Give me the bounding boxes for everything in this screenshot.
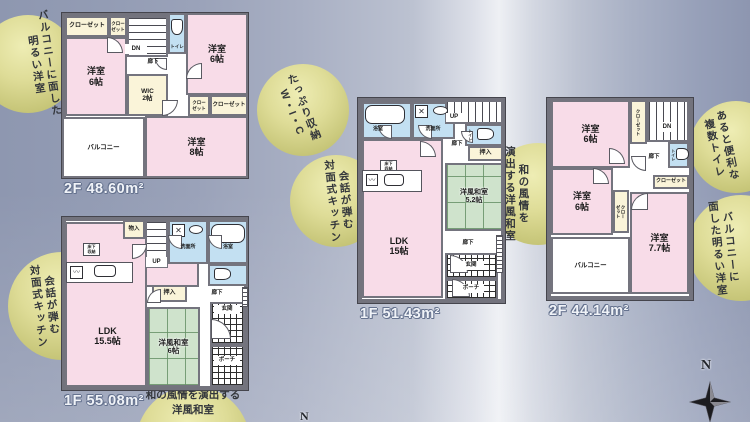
compass-secondary-north-label: N: [300, 409, 309, 422]
plan-1f-middle-area-label: 1F 51.43m²: [360, 306, 440, 322]
sink-fixture: [189, 225, 203, 234]
callout-washitsu-1f-left-text: 和の風情を演出する洋風和室: [146, 389, 241, 416]
closet: クロー ゼット: [188, 95, 210, 116]
washroom-label: 洗面所: [170, 243, 206, 252]
bathroom-label: 浴室: [214, 243, 242, 252]
hallway-label: 廊下: [643, 152, 665, 162]
toileth-fixture: [676, 148, 689, 160]
callout-wic-storage: たっぷり収納W・I・C: [257, 64, 349, 156]
callout-text-segment: 演出する洋風和室: [504, 146, 515, 242]
porch-label: ポーチ: [458, 284, 484, 293]
callout-kitchen-1f-left-text: 会話が弾む対面式キッチン: [27, 263, 60, 349]
sb-fixture: [496, 235, 503, 273]
floorplan-canvas: バルコニーに面した明るい洋室たっぷり収納W・I・C会話が弾む対面式キッチン和の風…: [0, 0, 750, 422]
stairs-direction-label: DN: [125, 44, 147, 54]
genkan-label: 玄関: [458, 261, 484, 270]
closet: クローゼット: [630, 100, 647, 144]
hallway-label: 廊下: [140, 57, 166, 67]
toileth-fixture: [477, 128, 494, 140]
plan-1f-left-area-label: 1F 55.08m²: [64, 393, 144, 409]
hallway-label: 廊下: [205, 288, 229, 298]
plan-2f-left: クローゼットクロー ゼットDNトイレ洋室 6帖洋室 6帖WIC 2帖廊下クロー …: [62, 13, 248, 178]
callout-text-segment: 洋風和室: [172, 404, 214, 417]
balcony: バルコニー: [551, 237, 630, 294]
sb-fixture: [242, 287, 248, 307]
ksink-fixture: [94, 265, 116, 277]
closet: クローゼット: [65, 16, 109, 37]
callout-text-segment: 和の風情を: [517, 164, 528, 224]
toilet-label: トイレ: [669, 145, 677, 165]
storage: 物入: [123, 220, 145, 239]
toileth-fixture: [214, 268, 231, 280]
genkan-label: 玄関: [214, 305, 240, 314]
hallway-label: 廊下: [446, 139, 468, 149]
balcony: バルコニー: [62, 117, 145, 178]
washroom-label: 洗面所: [414, 125, 452, 134]
stairs-direction-label: UP: [146, 257, 167, 267]
callout-multiple-toilets-text: あると便利な複数トイレ: [700, 109, 739, 185]
ksink-fixture: [384, 174, 404, 186]
toiletv-fixture: [171, 19, 183, 35]
callout-washitsu-1f-left: 和の風情を演出する洋風和室: [136, 386, 250, 422]
stove-fixture: 〰: [366, 174, 378, 186]
callout-text-segment: 和の風情を演出する: [146, 389, 241, 402]
plan-1f-left: LDK 15.5帖物入UP洗面所浴室押入廊下洋風和室 6帖玄関ポーチ床下 収納✕…: [62, 217, 248, 390]
callout-wic-storage-text: たっぷり収納W・I・C: [272, 72, 322, 148]
hallway-label: 廊下: [456, 238, 480, 248]
callout-balcony-bright-room-2f-right: バルコニーに面した明るい洋室: [688, 195, 750, 301]
ldk-label: LDK 15帖: [370, 226, 428, 266]
closet: クローゼット: [653, 175, 689, 189]
stairs-direction-label: DN: [657, 122, 677, 132]
ldk: [362, 139, 443, 298]
washitsu: 洋風和室 6帖: [147, 307, 200, 387]
closet: クローゼット: [210, 95, 248, 116]
bathroom-label: 浴室: [366, 125, 390, 134]
toilet-label: トイレ: [167, 43, 187, 51]
plan-2f-right-area-label: 2F 44.14m²: [549, 303, 629, 319]
stove-fixture: 〰: [70, 266, 83, 279]
callout-multiple-toilets: あると便利な複数トイレ: [690, 101, 750, 193]
compass-north-label: N: [701, 358, 711, 374]
callout-balcony-bright-room-2f-left-text: バルコニーに面した明るい洋室: [22, 9, 61, 119]
oshiire: 押入: [468, 146, 503, 161]
callout-balcony-bright-room-2f-right-text: バルコニーに面した明るい洋室: [706, 199, 741, 297]
plan-1f-middle: 浴室洗面所UPトイレ廊下押入LDK 15帖床下 収納洋風和室 5.2帖廊下玄関ポ…: [358, 98, 505, 303]
compass-rose-icon: [688, 380, 732, 422]
porch-label: ポーチ: [214, 356, 240, 365]
tub-fixture: [365, 105, 405, 124]
stairs-direction-label: UP: [446, 113, 462, 122]
bedroom-8: 洋室 8帖: [145, 116, 248, 178]
bedroom-6: 洋室 6帖: [186, 13, 248, 95]
plan-2f-left-area-label: 2F 48.60m²: [64, 181, 144, 197]
closet: クロー ゼット: [109, 16, 127, 37]
washer-fixture: ✕: [415, 105, 428, 118]
floor-storage: 床下 収納: [83, 243, 100, 256]
staircase: [647, 100, 689, 142]
ldk-label: LDK 15.5帖: [70, 315, 145, 357]
washitsu: 洋風和室 5.2帖: [445, 163, 503, 231]
door-swing: [147, 289, 161, 303]
closet: クロー ゼット: [613, 190, 629, 233]
porch: [210, 345, 245, 387]
door-swing: [162, 100, 178, 116]
callout-washitsu-1f-middle-text: 和の風情を演出する洋風和室: [504, 146, 529, 242]
plan-2f-right: 洋室 6帖クローゼットDNトイレ廊下洋室 6帖クロー ゼットクローゼット洋室 7…: [547, 98, 693, 300]
callout-kitchen-1f-middle-text: 会話が弾む対面式キッチン: [322, 158, 354, 244]
